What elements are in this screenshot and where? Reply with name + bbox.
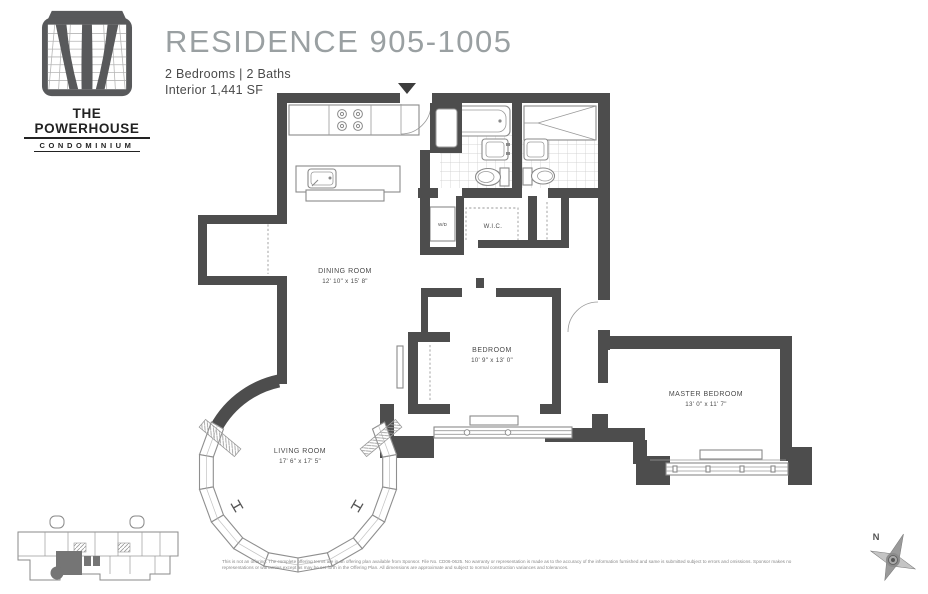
bedroom-radiator	[470, 416, 518, 425]
disclaimer: This is not an offering. The complete of…	[222, 559, 818, 571]
master-radiator	[700, 450, 762, 459]
compass: N	[863, 525, 926, 589]
floor-plan: W/D	[0, 0, 928, 594]
bathroom-1-sink	[482, 139, 510, 160]
room-label-dining: DINING ROOM	[318, 268, 372, 275]
master-window-band	[666, 463, 788, 475]
closet-shelving-dashes	[268, 202, 547, 402]
casement-h-icon	[351, 500, 363, 513]
shower	[524, 106, 596, 140]
bathroom-2-toilet	[523, 168, 555, 185]
room-dims-living: 17' 6" x 17' 5"	[279, 458, 321, 465]
disclaimer-line-2: representations or warranties except as …	[222, 565, 818, 571]
washer-dryer: W/D	[430, 207, 455, 241]
page: THE POWERHOUSE CONDOMINIUM RESIDENCE 905…	[0, 0, 928, 594]
casement-h-icon	[231, 500, 243, 513]
wic-label: W.I.C.	[484, 224, 503, 230]
kitchen-counter	[289, 105, 419, 135]
kitchen-sink	[308, 169, 336, 188]
bathroom-1-toilet	[476, 168, 510, 186]
room-label-master: MASTER BEDROOM	[669, 391, 743, 398]
room-label-bedroom: BEDROOM	[472, 347, 512, 354]
wd-label: W/D	[438, 222, 448, 227]
windows	[434, 416, 788, 475]
room-dims-bedroom: 10' 9" x 13' 0"	[471, 357, 513, 364]
entry-niche	[436, 109, 457, 147]
bathroom-2-sink	[524, 139, 548, 160]
bedroom-window-band	[434, 427, 572, 438]
closet-slider-door	[397, 346, 403, 388]
kitchen	[289, 105, 419, 201]
entry-marker-icon	[398, 83, 416, 94]
master-door-arc	[568, 302, 598, 332]
room-dims-master: 13' 0" x 11' 7"	[685, 401, 726, 408]
room-dims-dining: 12' 10" x 15' 8"	[322, 278, 368, 285]
compass-north-label: N	[873, 532, 880, 543]
bay-details	[199, 419, 402, 512]
key-plan	[18, 516, 178, 580]
room-label-living: LIVING ROOM	[274, 448, 326, 455]
